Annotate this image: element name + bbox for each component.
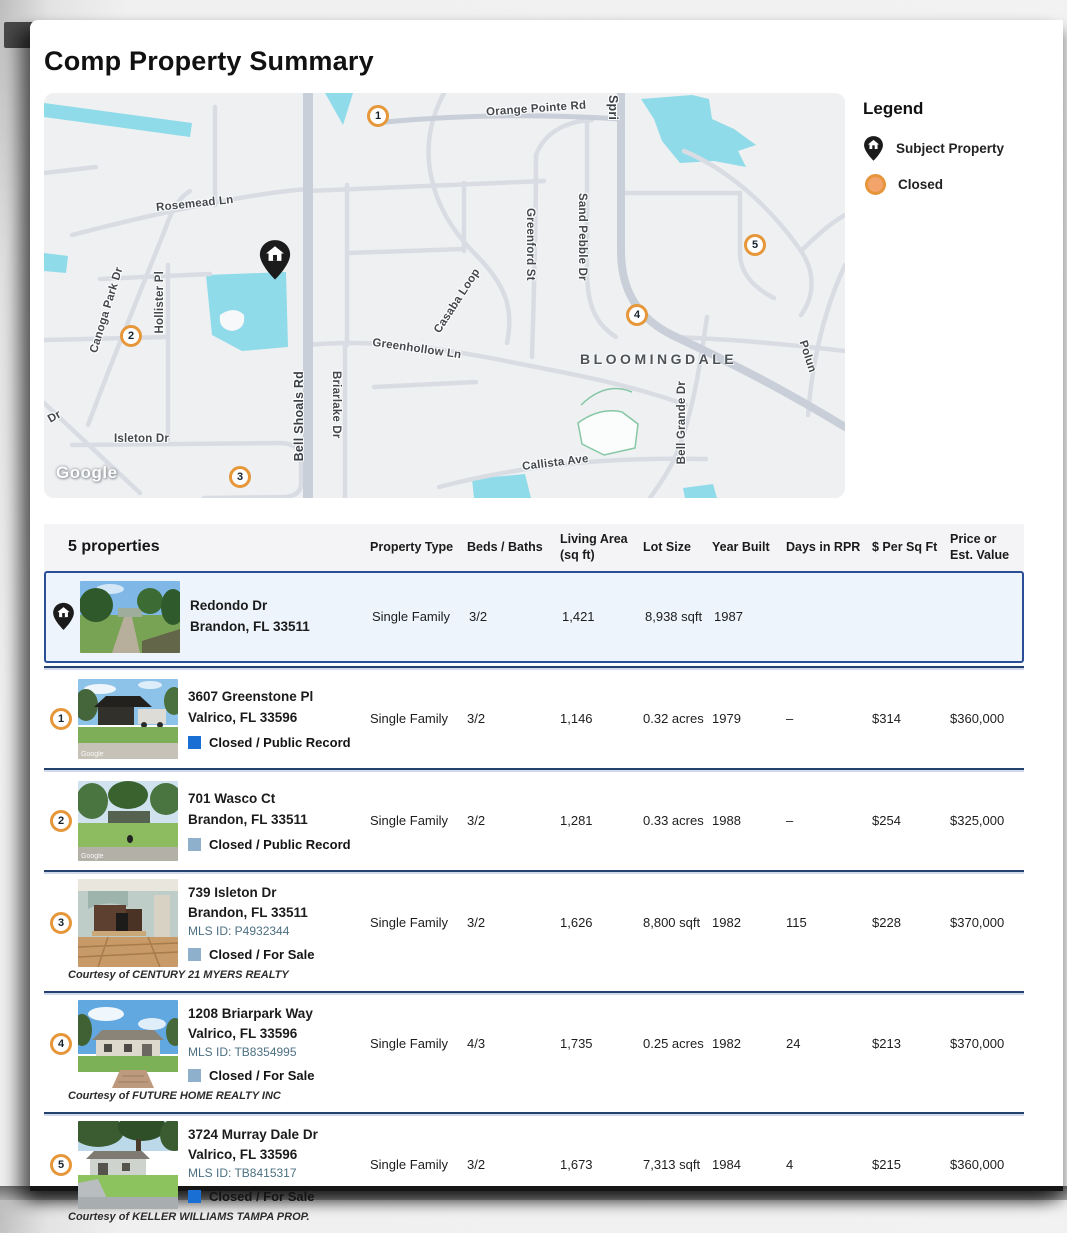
map-area-label: BLOOMINGDALE	[580, 351, 737, 367]
address-line1: 701 Wasco Ct	[188, 789, 351, 809]
comps-table: 5 properties Property Type Beds / Baths …	[44, 524, 1024, 1233]
lot-size: 0.33 acres	[643, 813, 712, 828]
beds-baths: 4/3	[467, 1036, 560, 1051]
status-label: Closed / For Sale	[209, 1189, 314, 1204]
col-per-sqft: $ Per Sq Ft	[872, 539, 950, 555]
days-in-rpr: 115	[786, 915, 872, 930]
property-photo	[78, 879, 178, 967]
status-label: Closed / For Sale	[209, 947, 314, 962]
living-area: 1,626	[560, 915, 643, 930]
property-photo: Google	[78, 781, 178, 861]
address-line2: Brandon, FL 33511	[188, 810, 351, 830]
property-type: Single Family	[370, 813, 467, 828]
table-row-comp-1: 1 Google 3607 Greenstone	[44, 666, 1024, 768]
street-label: Hollister Pl	[154, 271, 166, 333]
status-badge: Closed / For Sale	[188, 947, 314, 962]
col-year-built: Year Built	[712, 539, 786, 555]
property-photo: Google	[78, 679, 178, 759]
legend: Legend Subject Property Closed	[863, 93, 1059, 498]
address-line2: Brandon, FL 33511	[190, 617, 310, 637]
street-label: Bell Grande Dr	[676, 381, 688, 464]
address-line1: 1208 Briarpark Way	[188, 1004, 314, 1024]
beds-baths: 3/2	[467, 1157, 560, 1172]
street-label: Isleton Dr	[114, 433, 169, 445]
page-title: Comp Property Summary	[44, 46, 1063, 77]
price: $325,000	[950, 813, 1024, 828]
property-photo	[78, 1000, 178, 1088]
address-line1: 3724 Murray Dale Dr	[188, 1125, 318, 1145]
table-row-subject: Redondo Dr Brandon, FL 33511 Single Fami…	[44, 571, 1024, 663]
map-marker-3[interactable]: 3	[229, 466, 251, 488]
property-photo	[80, 581, 180, 653]
price-per-sqft: $228	[872, 915, 950, 930]
svg-text:Google: Google	[81, 853, 104, 860]
subject-pin-icon	[863, 135, 884, 162]
status-badge: Closed / For Sale	[188, 1189, 318, 1204]
mls-id: MLS ID: P4932344	[188, 923, 314, 940]
price-per-sqft: $254	[872, 813, 950, 828]
price: $370,000	[950, 1036, 1024, 1051]
mls-id: MLS ID: TB8354995	[188, 1044, 314, 1061]
report-page: Comp Property Summary	[30, 20, 1063, 1191]
property-photo	[78, 1121, 178, 1209]
legend-item-closed: Closed	[863, 174, 1059, 195]
col-living-area: Living Area (sq ft)	[560, 531, 643, 564]
comp-marker-2: 2	[50, 810, 72, 832]
courtesy-note: Courtesy of KELLER WILLIAMS TAMPA PROP.	[68, 1211, 1024, 1223]
legend-closed-label: Closed	[898, 177, 943, 192]
street-label: Sand Pebble Dr	[576, 193, 588, 281]
map-marker-5[interactable]: 5	[744, 234, 766, 256]
property-type: Single Family	[372, 609, 469, 624]
lot-size: 8,800 sqft	[643, 915, 712, 930]
year-built: 1982	[712, 1036, 786, 1051]
street-label: Spri	[606, 95, 620, 120]
status-label: Closed / For Sale	[209, 1068, 314, 1083]
lot-size: 7,313 sqft	[643, 1157, 712, 1172]
courtesy-note: Courtesy of FUTURE HOME REALTY INC	[68, 1090, 1024, 1102]
status-label: Closed / Public Record	[209, 837, 351, 852]
google-logo: Google	[56, 463, 118, 483]
status-badge: Closed / Public Record	[188, 837, 351, 852]
map-marker-2[interactable]: 2	[120, 325, 142, 347]
lot-size: 0.25 acres	[643, 1036, 712, 1051]
status-badge: Closed / Public Record	[188, 735, 351, 750]
beds-baths: 3/2	[467, 711, 560, 726]
price: $360,000	[950, 1157, 1024, 1172]
comp-marker-4: 4	[50, 1033, 72, 1055]
legend-subject-label: Subject Property	[896, 141, 1004, 156]
table-header: 5 properties Property Type Beds / Baths …	[44, 524, 1024, 571]
col-price: Price or Est. Value	[950, 531, 1024, 564]
col-property-type: Property Type	[370, 539, 467, 555]
beds-baths: 3/2	[469, 609, 562, 624]
legend-title: Legend	[863, 99, 1059, 119]
table-row-comp-3: 3	[44, 870, 1024, 991]
status-square-icon	[188, 948, 201, 961]
street-label: Bell Shoals Rd	[292, 371, 306, 461]
status-badge: Closed / For Sale	[188, 1068, 314, 1083]
status-label: Closed / Public Record	[209, 735, 351, 750]
street-label: Greenford St	[524, 208, 536, 281]
street-label: Briarlake Dr	[330, 371, 342, 439]
price: $360,000	[950, 711, 1024, 726]
status-square-icon	[188, 736, 201, 749]
address-line2: Valrico, FL 33596	[188, 708, 351, 728]
property-count: 5 properties	[44, 538, 370, 556]
col-lot-size: Lot Size	[643, 539, 712, 555]
property-type: Single Family	[370, 1157, 467, 1172]
courtesy-note: Courtesy of CENTURY 21 MYERS REALTY	[68, 969, 1024, 981]
year-built: 1984	[712, 1157, 786, 1172]
map-marker-4[interactable]: 4	[626, 304, 648, 326]
table-row-comp-5: 5	[44, 1112, 1024, 1233]
property-type: Single Family	[370, 1036, 467, 1051]
comps-map[interactable]: Orange Pointe Rd Spri Rosemead Ln Casaba…	[44, 93, 845, 498]
address-line2: Valrico, FL 33596	[188, 1024, 314, 1044]
beds-baths: 3/2	[467, 915, 560, 930]
subject-property-pin[interactable]	[258, 239, 292, 281]
year-built: 1982	[712, 915, 786, 930]
price-per-sqft: $213	[872, 1036, 950, 1051]
status-square-icon	[188, 1190, 201, 1203]
year-built: 1988	[712, 813, 786, 828]
svg-text:Google: Google	[81, 751, 104, 758]
living-area: 1,673	[560, 1157, 643, 1172]
property-type: Single Family	[370, 915, 467, 930]
map-section: Orange Pointe Rd Spri Rosemead Ln Casaba…	[44, 93, 1063, 498]
mls-id: MLS ID: TB8415317	[188, 1165, 318, 1182]
status-square-icon	[188, 838, 201, 851]
days-in-rpr: 24	[786, 1036, 872, 1051]
closed-circle-icon	[865, 174, 886, 195]
living-area: 1,421	[562, 609, 645, 624]
lot-size: 8,938 sqft	[645, 609, 714, 624]
subject-pin-icon	[52, 602, 75, 631]
legend-item-subject: Subject Property	[863, 135, 1059, 162]
days-in-rpr: 4	[786, 1157, 872, 1172]
col-days-in-rpr: Days in RPR	[786, 539, 872, 555]
address-line1: 739 Isleton Dr	[188, 883, 314, 903]
beds-baths: 3/2	[467, 813, 560, 828]
address-line2: Brandon, FL 33511	[188, 903, 314, 923]
year-built: 1979	[712, 711, 786, 726]
comp-marker-1: 1	[50, 708, 72, 730]
table-row-comp-4: 4	[44, 991, 1024, 1112]
comp-marker-5: 5	[50, 1154, 72, 1176]
status-square-icon	[188, 1069, 201, 1082]
year-built: 1987	[714, 609, 788, 624]
comp-marker-3: 3	[50, 912, 72, 934]
address-line2: Valrico, FL 33596	[188, 1145, 318, 1165]
map-marker-1[interactable]: 1	[367, 105, 389, 127]
table-row-comp-2: 2 Google 701 Wasco Ct	[44, 768, 1024, 870]
col-beds-baths: Beds / Baths	[467, 539, 560, 555]
price-per-sqft: $215	[872, 1157, 950, 1172]
living-area: 1,146	[560, 711, 643, 726]
address-line1: Redondo Dr	[190, 596, 310, 616]
days-in-rpr: –	[786, 813, 872, 828]
price: $370,000	[950, 915, 1024, 930]
living-area: 1,281	[560, 813, 643, 828]
address-line1: 3607 Greenstone Pl	[188, 687, 351, 707]
days-in-rpr: –	[786, 711, 872, 726]
price-per-sqft: $314	[872, 711, 950, 726]
lot-size: 0.32 acres	[643, 711, 712, 726]
property-type: Single Family	[370, 711, 467, 726]
living-area: 1,735	[560, 1036, 643, 1051]
